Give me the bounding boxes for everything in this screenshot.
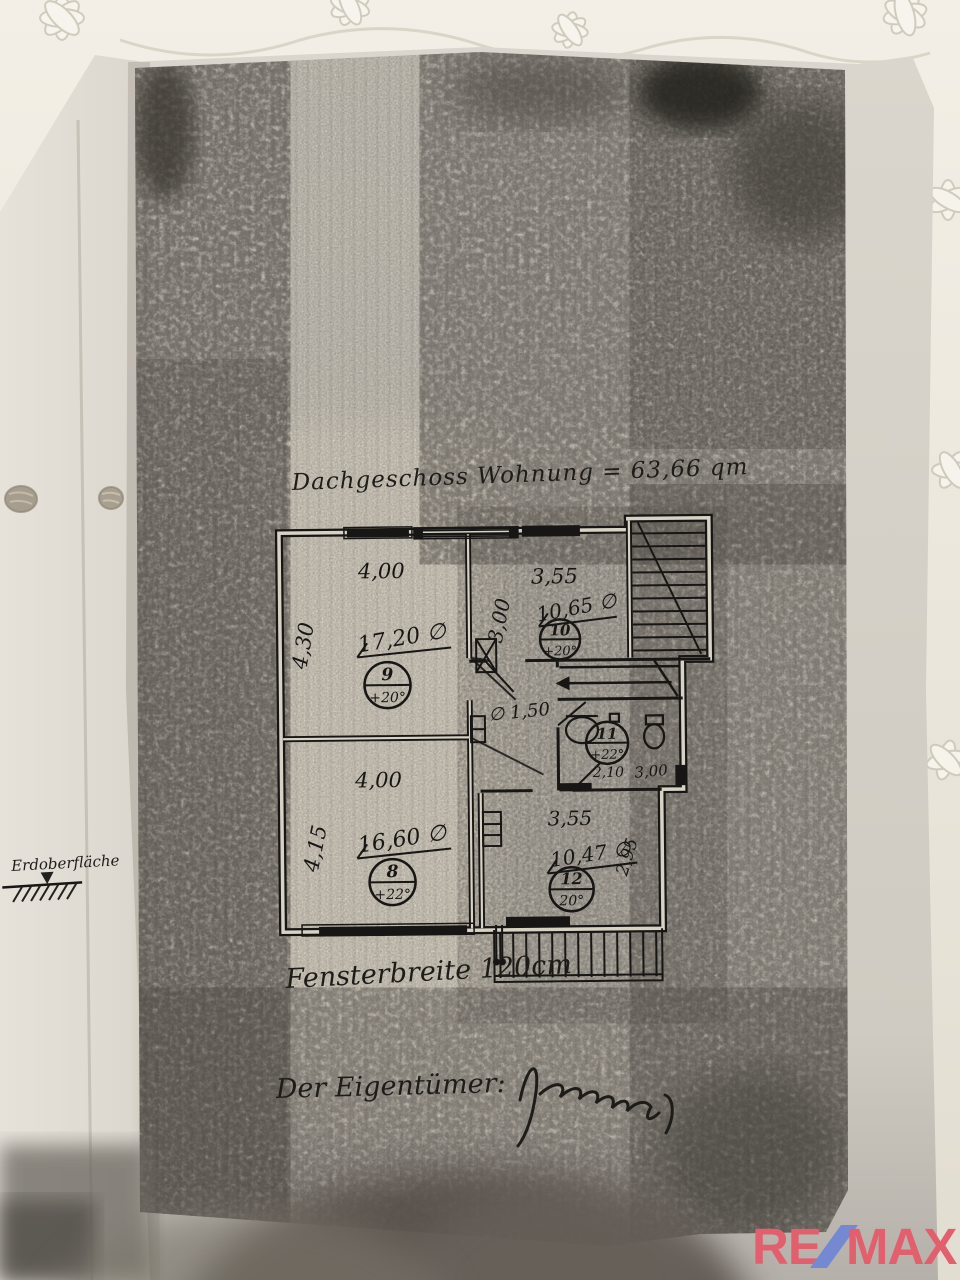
room-12-width: 3,55 — [548, 806, 593, 830]
room-9-number: 9 — [381, 665, 393, 685]
room-9-badge: 9 +20° — [364, 662, 410, 708]
room-12-number: 12 — [560, 869, 582, 888]
room-8-badge: 8 +22° — [369, 859, 415, 905]
room-10-badge: 10 +20° — [540, 619, 580, 659]
room-8-width: 4,00 — [354, 768, 402, 792]
remax-logo: RE MAX — [752, 1218, 957, 1275]
room-8-temperature: +22° — [374, 887, 411, 903]
room-11-temperature: +22° — [590, 748, 624, 763]
room-12-badge: 12 20° — [549, 867, 593, 911]
room-12-temperature: 20° — [558, 893, 584, 909]
room-10-width: 3,55 — [531, 564, 578, 588]
room-11-badge: 11 +22° — [586, 722, 628, 764]
toner-blob — [638, 54, 762, 130]
photo-canvas: Erdoberfläche — [0, 0, 960, 1280]
remax-logo-max: MAX — [846, 1218, 957, 1275]
punch-hole-right — [99, 487, 123, 509]
room-11-width: 2,10 — [592, 765, 624, 781]
owner-label: Der Eigentümer: — [274, 1068, 506, 1105]
photographed-floorplan-document: Erdoberfläche — [0, 0, 960, 1280]
room-8-number: 8 — [385, 862, 398, 882]
room-10-temperature: +20° — [543, 644, 577, 659]
punch-hole-left — [5, 486, 37, 512]
remax-logo-re: RE — [752, 1218, 821, 1275]
room-9-width: 4,00 — [357, 559, 405, 583]
room-11-depth: 3,00 — [634, 761, 669, 782]
room-9-temperature: +20° — [369, 690, 406, 706]
stair-direction-arrow — [568, 682, 672, 683]
room-11-number: 11 — [597, 725, 618, 743]
room-10-number: 10 — [549, 621, 571, 639]
